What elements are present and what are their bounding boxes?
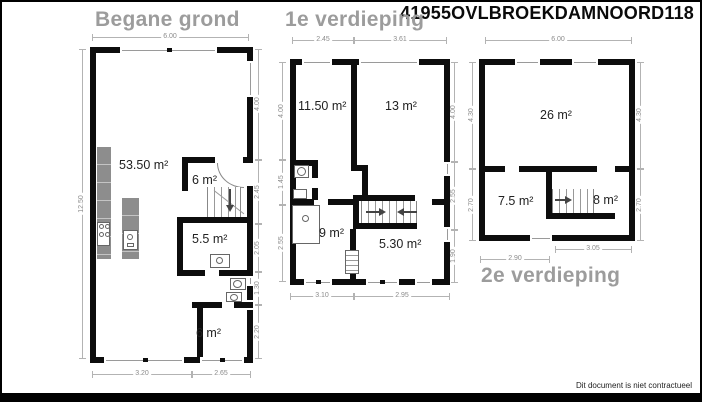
dimension-label: 6.00	[549, 36, 567, 44]
dimension-label: 2.70	[468, 196, 476, 214]
plan-second-floor: 2e verdieping 6.00 26 m² 7.5 m² 8 m² 4.3…	[2, 2, 700, 393]
floorplan-document: 41955OVLBROEKDAMNOORD118 Begane grond 6.…	[0, 0, 702, 402]
wall	[552, 213, 615, 219]
room-area-label: 8 m²	[593, 193, 618, 207]
wall	[629, 65, 635, 235]
window	[515, 59, 540, 65]
dimension-label: 4.30	[468, 106, 476, 124]
wall	[519, 166, 597, 172]
wall	[479, 235, 530, 241]
window	[572, 59, 598, 65]
dimension-label: 2.90	[506, 255, 524, 263]
stairs	[552, 189, 594, 213]
disclaimer-text: Dit document is niet contractueel	[576, 381, 692, 390]
second-floor-title: 2e verdieping	[481, 264, 620, 288]
window	[530, 235, 552, 241]
stairs-direction-arrow	[555, 199, 565, 201]
wall	[552, 235, 635, 241]
dimension-label: 2.70	[636, 196, 644, 214]
room-area-label: 26 m²	[540, 108, 572, 122]
dimension-label: 3.05	[584, 245, 602, 253]
wall	[615, 166, 629, 172]
wall	[540, 59, 572, 65]
dimension-label: 4.30	[636, 106, 644, 124]
wall	[485, 166, 505, 172]
room-area-label: 7.5 m²	[498, 194, 533, 208]
arrow-right-icon	[565, 196, 572, 204]
wall	[479, 65, 485, 235]
